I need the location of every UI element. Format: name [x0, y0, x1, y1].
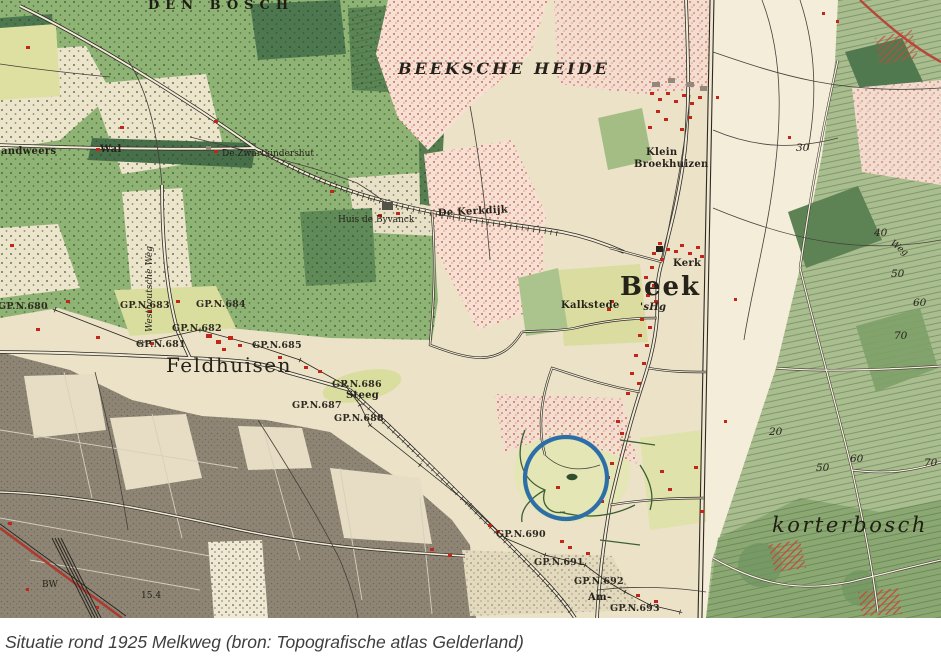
label-steeg: Steeg — [346, 390, 379, 401]
pond — [567, 474, 578, 480]
label-gp687: GP.N.687 — [292, 400, 342, 411]
map-svg: DEN BOSCH BEEKSCHE HEIDE Beek Kerk 'sHg … — [0, 0, 941, 618]
label-s-hg: 'sHg — [640, 302, 666, 313]
label-landweers: andweers — [1, 146, 56, 157]
contour-label-60b: 60 — [850, 453, 864, 465]
label-huis-de-byvanck: Huis de Byvanck — [338, 215, 415, 225]
label-klein: Klein — [646, 147, 678, 158]
contour-label-50: 50 — [891, 268, 905, 280]
contour-label-70: 70 — [894, 330, 908, 342]
contour-label-20: 20 — [768, 426, 783, 438]
contour-label-50b: 50 — [816, 462, 830, 474]
contour-label-60: 60 — [913, 297, 927, 309]
page: DEN BOSCH BEEKSCHE HEIDE Beek Kerk 'sHg … — [0, 0, 941, 663]
label-gp686: GP.N.686 — [332, 379, 382, 390]
label-gp681: GP.N.681 — [136, 339, 186, 350]
label-gp692: GP.N.692 — [574, 576, 624, 587]
label-beek: Beek — [620, 272, 701, 302]
label-gp693: GP.N.693 — [610, 603, 660, 614]
label-spot-height: 15.4 — [141, 591, 161, 601]
contour-label-70b: 70 — [924, 457, 938, 469]
label-gp691: GP.N.691 — [534, 557, 584, 568]
label-gp684: GP.N.684 — [196, 299, 246, 310]
label-gp680: GP.N.680 — [0, 301, 48, 312]
label-korterbosch: korterbosch — [772, 513, 928, 537]
label-westhoutsche-weg: Westhoutsche Weg — [145, 246, 155, 332]
church-building — [656, 246, 663, 252]
label-gp683: GP.N.683 — [120, 300, 170, 311]
historical-map: DEN BOSCH BEEKSCHE HEIDE Beek Kerk 'sHg … — [0, 0, 941, 618]
label-zwartkindershut: De Zwartkindershut — [222, 149, 314, 159]
label-broekhuizen: Broekhuizen — [634, 159, 709, 170]
contour-label-30: 30 — [796, 142, 810, 154]
huis-de-byvanck-building — [382, 202, 393, 210]
label-bw: BW — [42, 580, 59, 590]
label-wal: Wal — [99, 144, 122, 155]
label-gp685: GP.N.685 — [252, 340, 302, 351]
label-beeksche-heide: BEEKSCHE HEIDE — [397, 59, 610, 78]
contour-label-40: 40 — [873, 227, 888, 239]
label-gp688: GP.N.688 — [334, 413, 384, 424]
caption: Situatie rond 1925 Melkweg (bron: Topogr… — [5, 624, 935, 660]
label-gp690: GP.N.690 — [496, 529, 546, 540]
label-kerk: Kerk — [673, 258, 702, 269]
label-feldhuisen: Feldhuisen — [166, 353, 292, 377]
label-kalkstede: Kalkstede — [561, 300, 620, 311]
label-am: Am- — [587, 592, 611, 603]
label-gp682: GP.N.682 — [172, 323, 222, 334]
label-den-bosch: DEN BOSCH — [148, 0, 294, 13]
